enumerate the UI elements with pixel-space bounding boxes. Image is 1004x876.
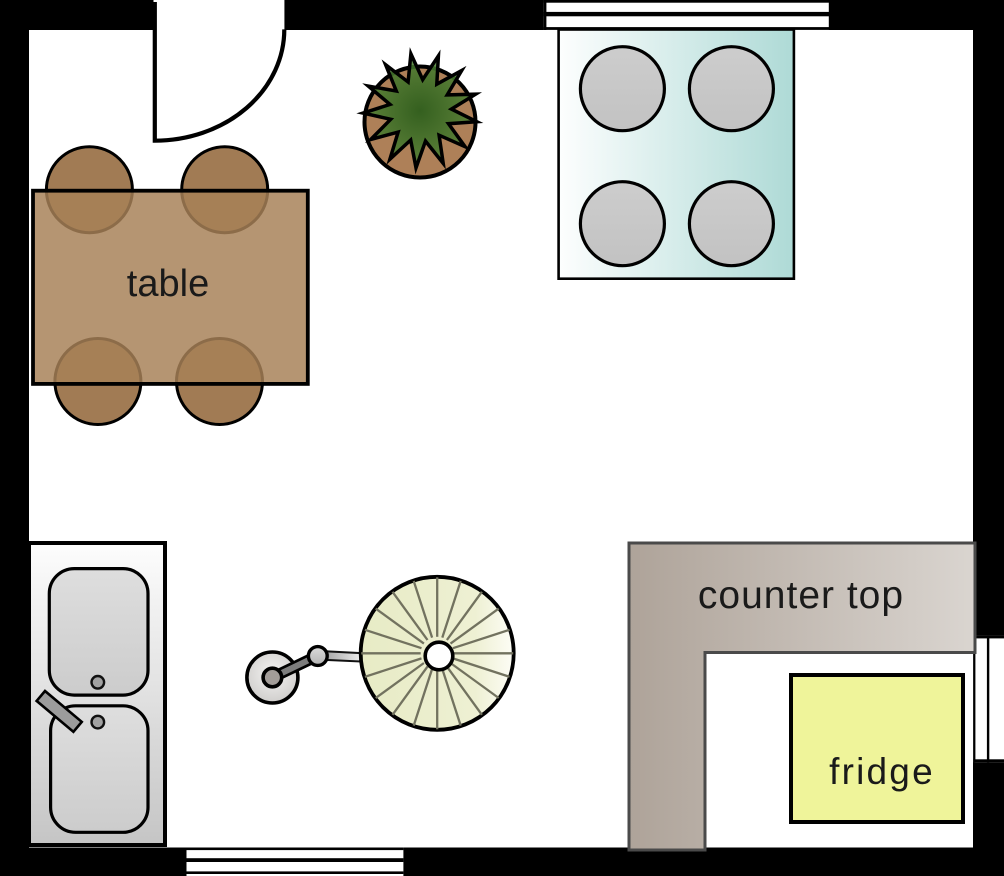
svg-text:counter top: counter top [698,574,904,617]
svg-text:fridge: fridge [829,751,935,792]
svg-text:table: table [127,263,209,305]
